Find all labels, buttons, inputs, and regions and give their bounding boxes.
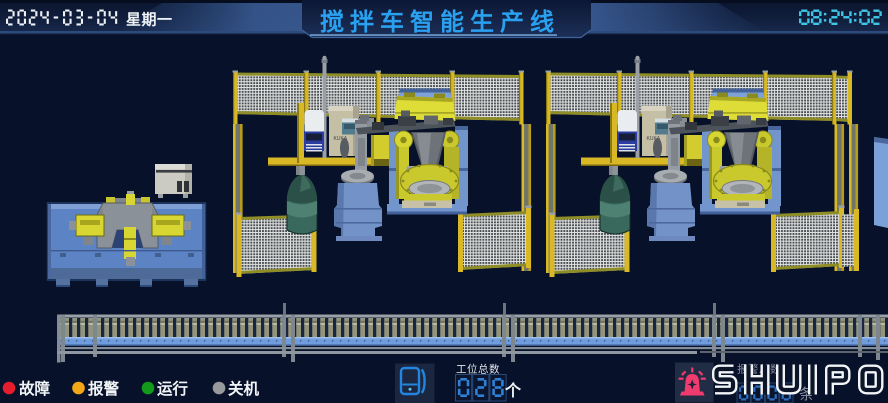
svg-text:工位总数: 工位总数 xyxy=(456,363,500,376)
svg-text:运行: 运行 xyxy=(157,379,189,398)
svg-text:搅拌车智能生产线: 搅拌车智能生产线 xyxy=(320,8,560,36)
svg-text:报警: 报警 xyxy=(88,379,120,398)
svg-text:报警总数: 报警总数 xyxy=(737,363,781,376)
svg-text:个: 个 xyxy=(504,381,522,400)
svg-text:星期一: 星期一 xyxy=(126,11,173,29)
svg-text:关机: 关机 xyxy=(228,379,260,398)
svg-text:故障: 故障 xyxy=(19,379,51,398)
